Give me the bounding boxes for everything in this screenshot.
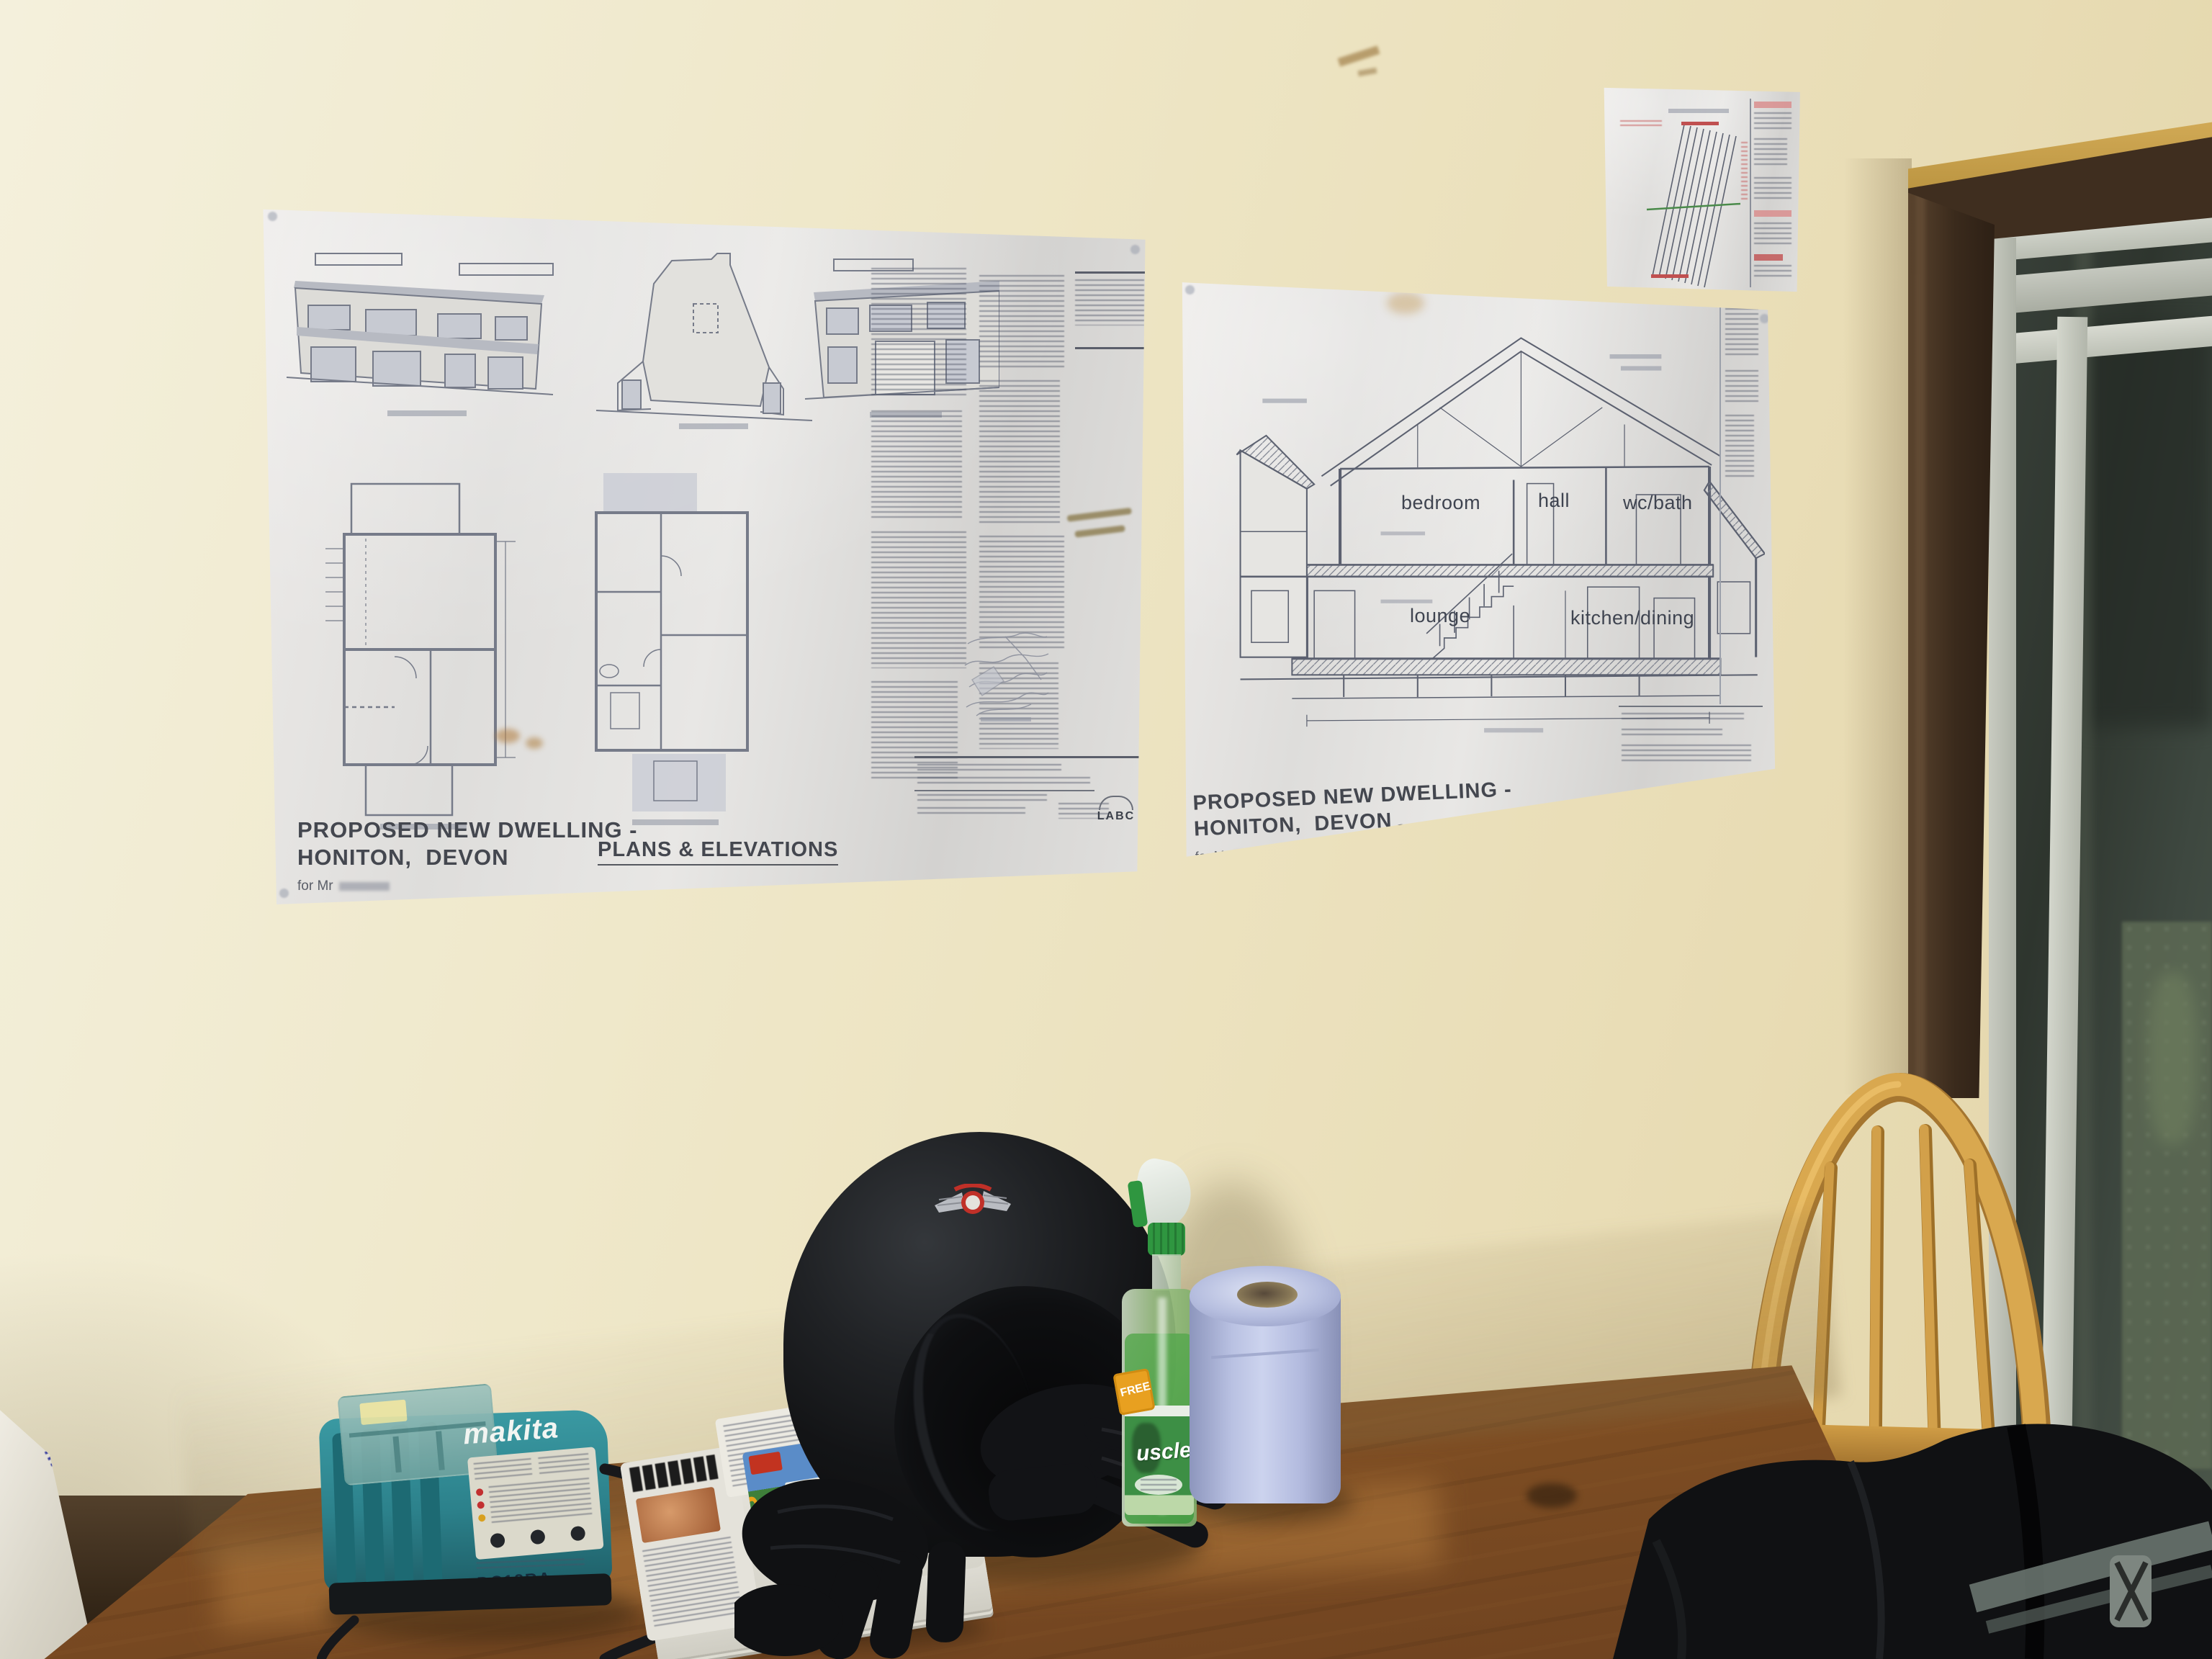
glass-reflection-dark	[2082, 324, 2212, 727]
spray-collar	[1148, 1223, 1185, 1256]
spec-paragraph	[871, 268, 966, 397]
wall-scuff-mark	[1338, 45, 1380, 66]
bottle-flash-text: FREE	[1119, 1380, 1152, 1401]
bottle-brand-text: uscle	[1136, 1438, 1192, 1466]
blue-paper-roll	[1190, 1266, 1341, 1503]
blu-tack	[1130, 245, 1140, 254]
project-title-line1: PROPOSED NEW DWELLING -	[297, 817, 638, 844]
client-line: for Mr	[297, 873, 333, 900]
bottle-flash-badge: FREE	[1112, 1368, 1155, 1416]
title-block-row	[917, 764, 1061, 771]
labc-stamp: LABC	[1093, 796, 1139, 824]
title-block-row	[917, 794, 1047, 801]
edge-title-strip	[1719, 301, 1766, 704]
room-label-hall: hall	[1538, 490, 1570, 512]
door-frame-jamb-brown	[1908, 184, 1995, 1098]
wall-shadow-beside-frame	[1843, 158, 1912, 1094]
left-sheet-project-title: PROPOSED NEW DWELLING - HONITON, DEVON f…	[297, 817, 638, 900]
glove-in-front-of-helmet	[734, 1469, 1008, 1659]
title-block: LABC	[914, 756, 1154, 833]
right-drawing-sheet: bedroom hall wc/bath lounge kitchen/dini…	[1178, 279, 1779, 877]
small-sheet-title-block	[1750, 99, 1799, 287]
spec-text-column-1	[871, 268, 966, 786]
chair-reflection-blob	[2147, 972, 2198, 1145]
room-label-lounge: lounge	[1410, 605, 1470, 627]
spec-paragraph	[871, 531, 966, 668]
bottle-label: uscle	[1125, 1406, 1194, 1515]
spec-paragraph	[979, 275, 1064, 369]
boxed-note-text	[1075, 279, 1144, 325]
client-line: for Mr	[1195, 842, 1230, 870]
room-photo: LABC PROPOSED NEW DWELLING - HONITON, DE…	[0, 0, 2212, 1659]
newspaper-photo	[636, 1487, 721, 1543]
labc-stamp-text: LABC	[1093, 810, 1139, 823]
bottle-neck	[1152, 1254, 1181, 1290]
blu-tack	[1185, 285, 1195, 295]
section-title-block	[1619, 706, 1763, 776]
backpack	[1613, 1411, 2212, 1659]
location-map-sketch	[962, 629, 1050, 723]
spray-bottle: uscle FREE	[1115, 1161, 1201, 1528]
floor-plans-drawing	[323, 469, 769, 837]
blu-tack	[1760, 314, 1769, 323]
right-sheet-project-title: PROPOSED NEW DWELLING - HONITON, DEVON f…	[1192, 776, 1515, 869]
blu-tack	[279, 889, 289, 898]
pencil-handwriting	[1067, 507, 1138, 548]
project-title-line2: HONITON, DEVON	[297, 844, 638, 871]
title-block-row	[917, 807, 1025, 814]
wood-frame-highlight	[1915, 184, 1925, 1098]
left-drawing-sheet: LABC PROPOSED NEW DWELLING - HONITON, DE…	[258, 203, 1151, 905]
wall-scuff-mark-small	[1358, 68, 1377, 76]
vertical-red-note	[1741, 142, 1748, 201]
section-drawing	[1196, 308, 1765, 740]
joist-layout-drawing	[1640, 103, 1748, 290]
title-block-row	[917, 777, 1090, 784]
curtain-reflection	[2122, 922, 2212, 1469]
small-pinned-sheet	[1600, 83, 1805, 299]
spec-paragraph	[871, 410, 962, 518]
room-label-wc-bath: wc/bath	[1623, 492, 1693, 514]
client-name-illegible	[1235, 849, 1281, 859]
roll-core	[1237, 1282, 1298, 1308]
left-sheet-drawing-title: PLANS & ELEVATIONS	[598, 838, 838, 866]
spec-paragraph	[979, 380, 1060, 524]
wood-knot	[1527, 1483, 1577, 1508]
helmet-wing-badge	[933, 1184, 1012, 1231]
boxed-note	[1075, 271, 1147, 349]
room-label-kitchen-dining: kitchen/dining	[1570, 607, 1694, 629]
client-name-illegible	[339, 882, 390, 891]
blu-tack	[268, 212, 277, 221]
room-label-bedroom: bedroom	[1401, 492, 1480, 514]
right-sheet-drawing-title: SECTION A-A	[1393, 815, 1528, 847]
